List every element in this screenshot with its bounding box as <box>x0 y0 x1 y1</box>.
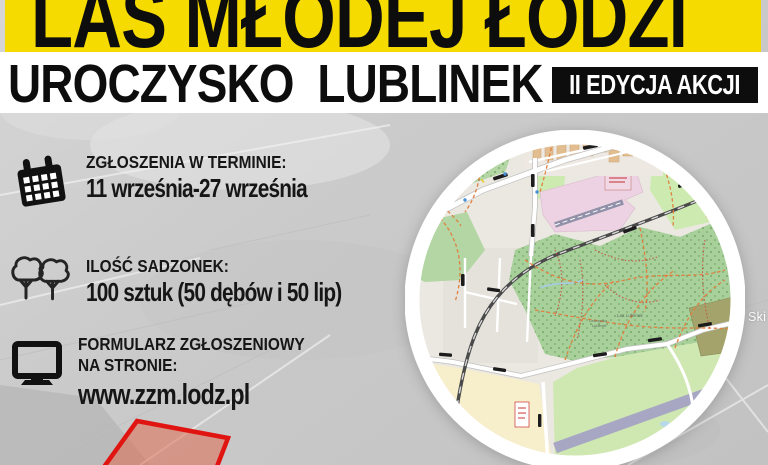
calendar-icon <box>10 152 72 212</box>
info-label: FORMULARZ ZGŁOSZENIOWY <box>78 334 305 355</box>
info-value: 11 września-27 września <box>86 173 307 203</box>
trees-icon <box>10 256 72 308</box>
edition-badge: II EDYCJA AKCJI <box>552 67 758 103</box>
map-inset-graphic: Las Lublinek Uroczysko Lublinek <box>405 130 745 465</box>
subtitle: UROCZYSKO LUBLINEK <box>8 60 543 108</box>
info-row-dates: ZGŁOSZENIA W TERMINIE: 11 września-27 wr… <box>10 152 362 212</box>
info-value: 100 sztuk (50 dębów i 50 lip) <box>86 277 341 307</box>
poster-root: Ski <box>0 0 768 465</box>
map-label-forest: Las Lublinek <box>617 313 643 318</box>
banner: LAS MŁODEJ ŁODZI <box>5 0 761 52</box>
info-label-2: NA STRONIE: <box>78 355 305 376</box>
info-label: ZGŁOSZENIA W TERMINIE: <box>86 152 329 173</box>
info-label: ILOŚĆ SADZONEK: <box>86 256 367 277</box>
page-title: LAS MŁODEJ ŁODZI <box>31 0 687 52</box>
monitor-icon <box>10 340 64 390</box>
info-row-form: FORMULARZ ZGŁOSZENIOWY NA STRONIE: www.z… <box>10 334 336 410</box>
background-place-label: Ski <box>748 310 768 324</box>
info-row-seedlings: ILOŚĆ SADZONEK: 100 sztuk (50 dębów i 50… <box>10 256 405 308</box>
map-notice-box <box>515 402 529 427</box>
info-value-url: www.zzm.lodz.pl <box>78 380 284 410</box>
highlight-polygon <box>96 421 228 465</box>
map-label-reserve-line2: Lublinek <box>592 323 607 328</box>
map-inset: Las Lublinek Uroczysko Lublinek <box>405 130 745 465</box>
edition-badge-label: II EDYCJA AKCJI <box>570 69 741 101</box>
